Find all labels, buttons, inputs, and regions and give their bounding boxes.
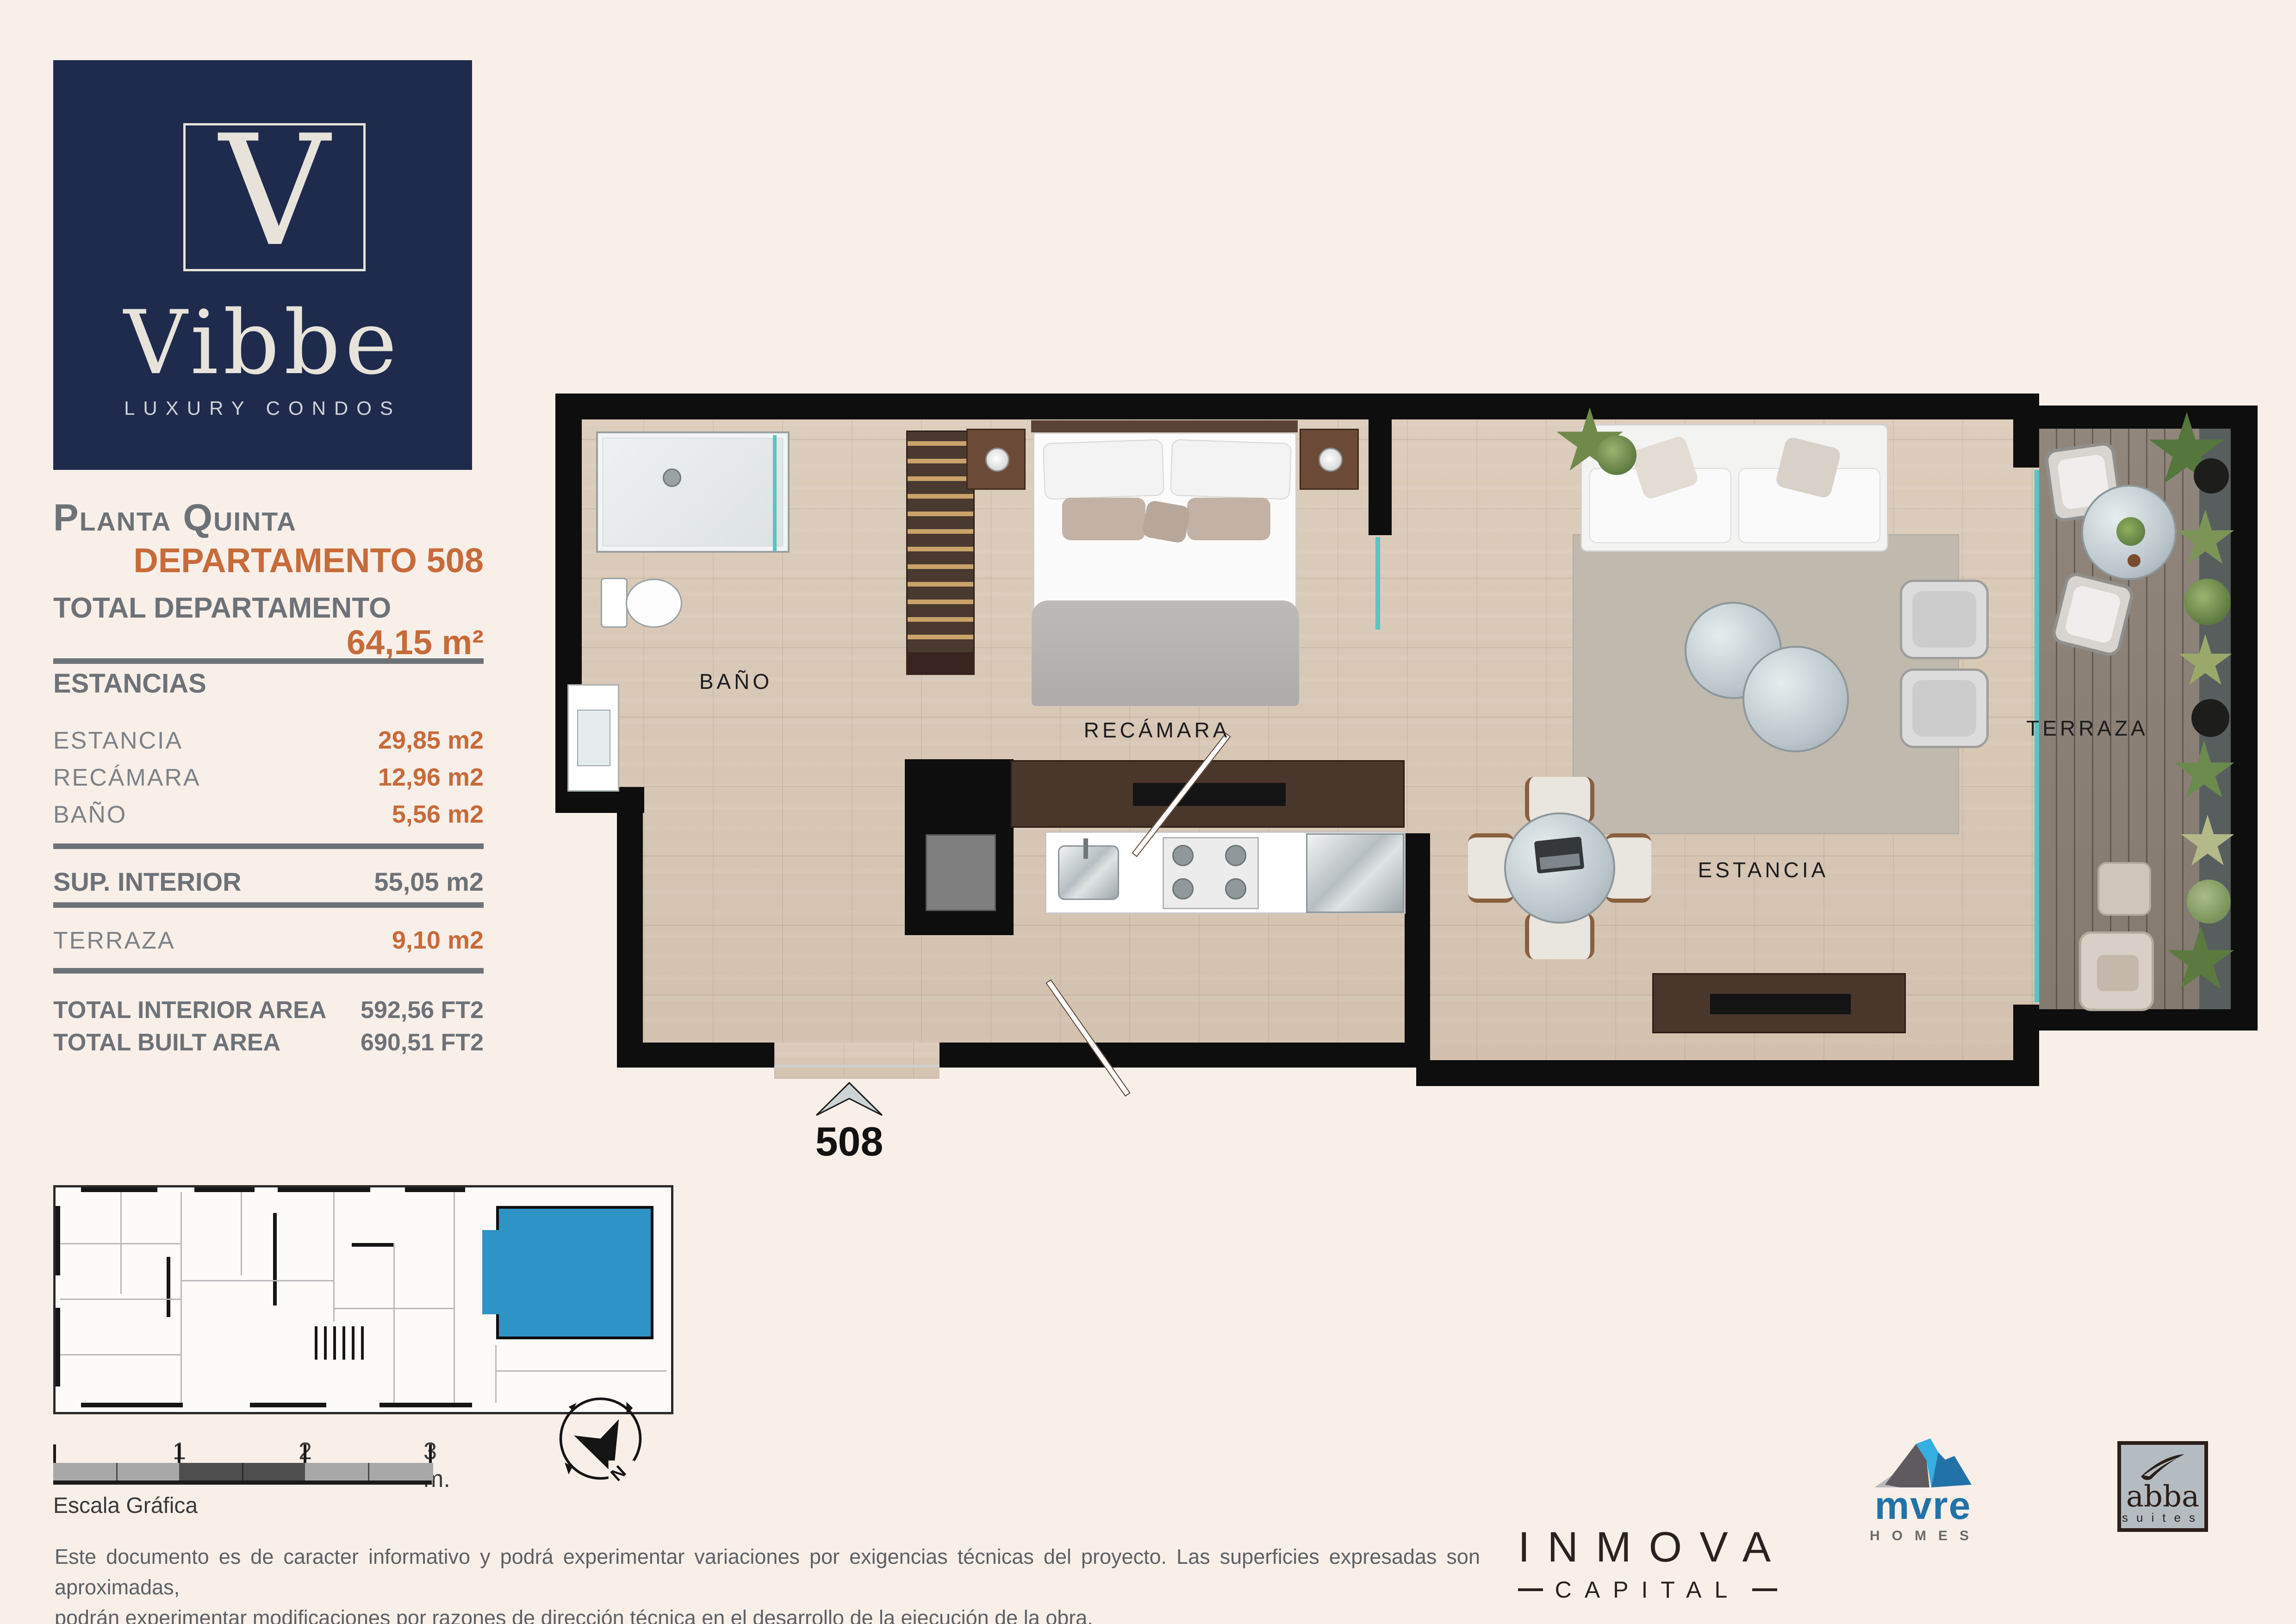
wall [2039,1009,2258,1031]
shower-glass [773,435,777,551]
room-label: ESTANCIA [53,727,183,755]
kitchen-cabinet [926,834,996,911]
armchair [1900,668,1989,748]
kitchen-sink [1058,845,1119,900]
dresser [1010,760,1405,828]
room-row: BAÑO 5,56 m2 [53,800,484,829]
inmova-rule [1518,1588,1543,1591]
coffee-table [1742,646,1849,752]
plant [2194,458,2229,493]
floor-plan: BAÑO RECÁMARA [555,394,2259,1088]
nightstand [1300,429,1359,490]
wall [2013,1005,2039,1086]
room-value: 12,96 m2 [378,763,484,792]
mvre-mountains-icon [1872,1437,1974,1489]
mvre-logo: mvre HOMES [1870,1437,1976,1544]
living-label: ESTANCIA [1671,857,1856,882]
floor-mask [555,813,617,1088]
closet [906,431,975,654]
wall [617,1043,774,1068]
total-departamento-value: 64,15 m² [53,623,484,662]
wall [1405,833,1430,1068]
wall [1416,1060,2039,1086]
highlighted-unit[interactable] [496,1206,653,1339]
stove [1163,837,1259,909]
wall [1369,419,1392,535]
plant [1597,435,1636,475]
sup-interior-row: SUP. INTERIOR 55,05 m2 [53,867,484,897]
wall [617,787,643,1068]
total-interior-row: TOTAL INTERIOR AREA 592,56 FT2 [53,996,484,1024]
room-value: 29,85 m2 [378,726,484,755]
unit-marker: 508 [808,1081,891,1165]
toilet [601,578,628,628]
total-built-value: 690,51 FT2 [361,1029,484,1056]
shower-head-icon [663,468,681,487]
bedroom-label: RECÁMARA [1060,718,1254,743]
disclaimer-line: Este documento es de caracter informativ… [55,1542,1480,1603]
room-value: 5,56 m2 [392,800,484,829]
unit-title: DEPARTAMENTO 508 [53,541,484,580]
entrance-arrow-icon [815,1081,884,1118]
divider [53,968,484,974]
sup-interior-label: SUP. INTERIOR [53,867,242,897]
floor-title: Planta Quinta [53,496,297,540]
mvre-sub-label: HOMES [1870,1528,1976,1544]
headboard [1031,420,1298,432]
tv-console [1652,973,1906,1033]
scale-bar: 1 2 3 m. Escala Gráfica [53,1428,470,1544]
terraza-value: 9,10 m2 [392,926,484,955]
room-label: BAÑO [53,801,127,829]
inmova-rule [1752,1588,1777,1591]
terrace-table [2081,485,2177,580]
shower [596,431,790,553]
logo-tagline: LUXURY CONDOS [53,397,472,419]
terraza-row: TERRAZA 9,10 m2 [53,926,484,955]
plant [2187,880,2231,924]
bath-label: BAÑO [662,669,810,694]
terrace-label: TERRAZA [2004,716,2171,741]
room-row: RECÁMARA 12,96 m2 [53,763,484,792]
total-built-row: TOTAL BUILT AREA 690,51 FT2 [53,1029,484,1056]
terrace-lounge-chair [2079,931,2154,1011]
plant [2191,699,2229,737]
disclaimer: Este documento es de caracter informativ… [55,1542,1480,1624]
total-departamento-label: TOTAL DEPARTAMENTO [53,592,391,625]
abba-leaf-icon [2137,1452,2188,1483]
unit-number: 508 [808,1118,891,1165]
logo-wordmark: Vibbe [53,292,472,394]
total-built-label: TOTAL BUILT AREA [53,1029,280,1056]
divider [53,658,484,664]
terraza-label: TERRAZA [53,927,175,955]
laptop [1534,837,1585,874]
abba-sub-label: suites [2121,1511,2204,1525]
refrigerator [1306,833,1404,913]
inmova-sub-label: CAPITAL [1555,1576,1741,1603]
compass-icon: N [551,1389,650,1488]
building-overview-plan [53,1185,673,1414]
total-interior-label: TOTAL INTERIOR AREA [53,996,326,1024]
room-label: RECÁMARA [53,764,201,792]
plant [2184,579,2231,625]
total-interior-value: 592,56 FT2 [361,996,484,1024]
wall [2231,406,2258,1031]
bedroom-window-glass [1375,537,1380,630]
nightstand [966,429,1026,490]
wall [2013,394,2039,468]
room-row: ESTANCIA 29,85 m2 [53,726,484,755]
vibbe-logo: V Vibbe LUXURY CONDOS [53,60,472,470]
closet-base [906,653,975,675]
bed [1033,432,1297,706]
wall [940,1043,1417,1068]
estancias-heading: ESTANCIAS [53,668,206,699]
abba-name: abba [2121,1483,2204,1511]
entry-threshold [774,1065,940,1068]
terrace-pouf [2097,862,2151,916]
inmova-name: INMOVA [1518,1523,1777,1572]
vanity-sink [567,684,619,792]
armchair [1900,580,1989,659]
disclaimer-line: podrán experimentar modificaciones por r… [55,1603,1480,1624]
sup-interior-value: 55,05 m2 [374,867,484,897]
wall [555,394,2039,419]
wall [2039,406,2256,429]
divider [53,902,484,908]
highlighted-unit-wing [482,1230,511,1314]
toilet-bowl [626,579,682,628]
inmova-logo: INMOVA CAPITAL [1518,1523,1777,1603]
brochure-page: V Vibbe LUXURY CONDOS Planta Quinta DEPA… [0,0,2296,1624]
logo-v-letter: V [183,115,366,268]
mvre-name: mvre [1870,1489,1976,1522]
divider [53,843,484,849]
abba-logo: abba suites [2117,1441,2208,1532]
scale-bar-title: Escala Gráfica [53,1493,198,1518]
entry-floor [774,1043,940,1079]
